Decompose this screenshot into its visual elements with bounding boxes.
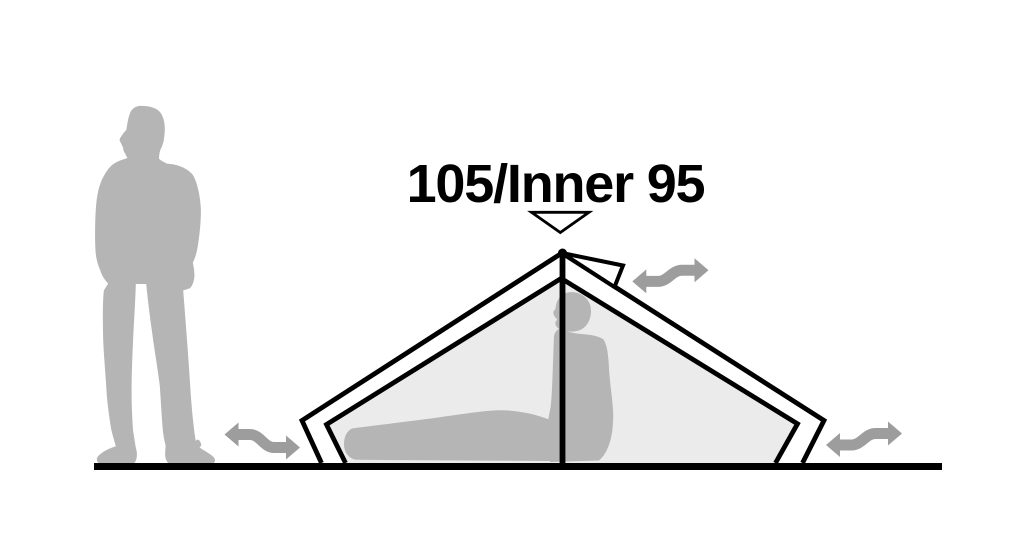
svg-text:105/Inner 95: 105/Inner 95 (407, 154, 705, 214)
